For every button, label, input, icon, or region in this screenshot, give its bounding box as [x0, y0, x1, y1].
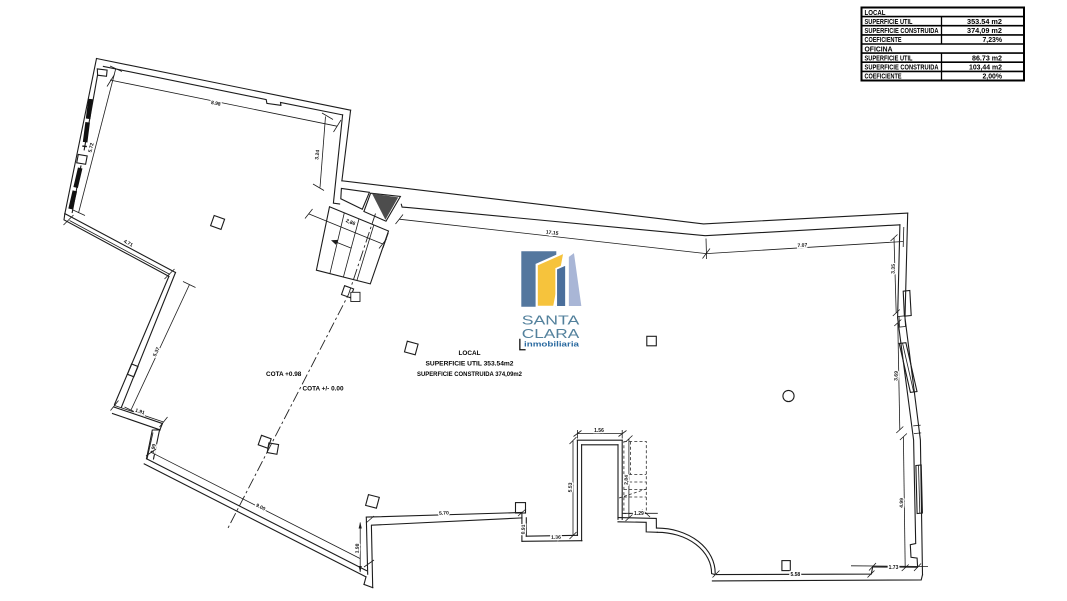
svg-text:COTA +0.98: COTA +0.98 — [266, 371, 302, 378]
svg-text:LOCAL: LOCAL — [458, 350, 480, 357]
svg-text:2,84: 2,84 — [624, 475, 630, 485]
svg-text:3.35: 3.35 — [891, 264, 898, 274]
svg-text:SUPERFICIE CONSTRUIDA 374,09: SUPERFICIE CONSTRUIDA 374,09m2 — [417, 371, 522, 378]
svg-text:1.98: 1.98 — [355, 543, 361, 553]
svg-text:COEFICIENTE: COEFICIENTE — [865, 74, 902, 81]
svg-text:OFICINA: OFICINA — [865, 46, 893, 53]
svg-text:4.99: 4.99 — [899, 498, 905, 508]
svg-text:SUPERFICIE UTIL 353.54m2: SUPERFICIE UTIL 353.54m2 — [426, 361, 514, 368]
svg-text:1.73: 1.73 — [889, 565, 899, 571]
svg-text:SUPERFICIE CONSTRUIDA: SUPERFICIE CONSTRUIDA — [865, 65, 939, 72]
svg-text:SUPERFICIE UTIL: SUPERFICIE UTIL — [865, 55, 913, 62]
svg-text:7.07: 7.07 — [797, 242, 807, 249]
svg-text:5.53: 5.53 — [568, 482, 574, 492]
svg-text:86.73 m2: 86.73 m2 — [972, 55, 1002, 62]
svg-text:COEFICIENTE: COEFICIENTE — [865, 37, 902, 44]
svg-text:SUPERFICIE UTIL: SUPERFICIE UTIL — [865, 19, 913, 26]
svg-text:5.58: 5.58 — [790, 572, 800, 578]
svg-text:103,44 m2: 103,44 m2 — [969, 65, 1002, 72]
svg-text:5.70: 5.70 — [439, 510, 449, 516]
svg-text:SUPERFICIE CONSTRUIDA: SUPERFICIE CONSTRUIDA — [865, 28, 939, 35]
svg-text:1.56: 1.56 — [594, 428, 604, 434]
svg-text:1.29: 1.29 — [634, 511, 644, 517]
svg-text:7,23%: 7,23% — [982, 37, 1002, 44]
svg-text:inmobiliaria: inmobiliaria — [524, 340, 580, 349]
svg-text:374,09 m2: 374,09 m2 — [967, 28, 1002, 35]
svg-text:3.24: 3.24 — [314, 149, 321, 160]
svg-text:0.91: 0.91 — [521, 524, 527, 534]
svg-text:353.54 m2: 353.54 m2 — [967, 19, 1002, 26]
svg-text:3.69: 3.69 — [893, 371, 900, 381]
svg-text:COTA +/- 0.00: COTA +/- 0.00 — [303, 386, 344, 393]
svg-text:2,00%: 2,00% — [982, 74, 1002, 81]
svg-text:LOCAL: LOCAL — [865, 10, 886, 17]
svg-text:1.36: 1.36 — [551, 535, 561, 541]
